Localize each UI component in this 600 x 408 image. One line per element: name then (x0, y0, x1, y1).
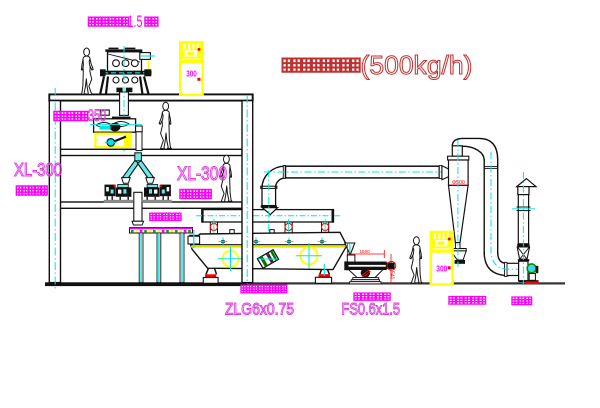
svg-text:Φ500: Φ500 (452, 180, 465, 186)
svg-text:ZLG6x0.75: ZLG6x0.75 (225, 301, 294, 319)
svg-text:(500kg/h): (500kg/h) (361, 50, 473, 80)
svg-text:FS0.6x1.5: FS0.6x1.5 (342, 300, 401, 319)
svg-text:540: 540 (389, 271, 395, 280)
svg-text:350: 350 (88, 106, 106, 125)
svg-text:300: 300 (186, 68, 197, 78)
svg-text:XL-300: XL-300 (14, 160, 62, 180)
svg-text:300: 300 (436, 264, 447, 274)
svg-text:1500: 1500 (360, 249, 371, 254)
svg-text:XL-300: XL-300 (177, 164, 227, 185)
svg-text:1.5: 1.5 (128, 12, 143, 31)
